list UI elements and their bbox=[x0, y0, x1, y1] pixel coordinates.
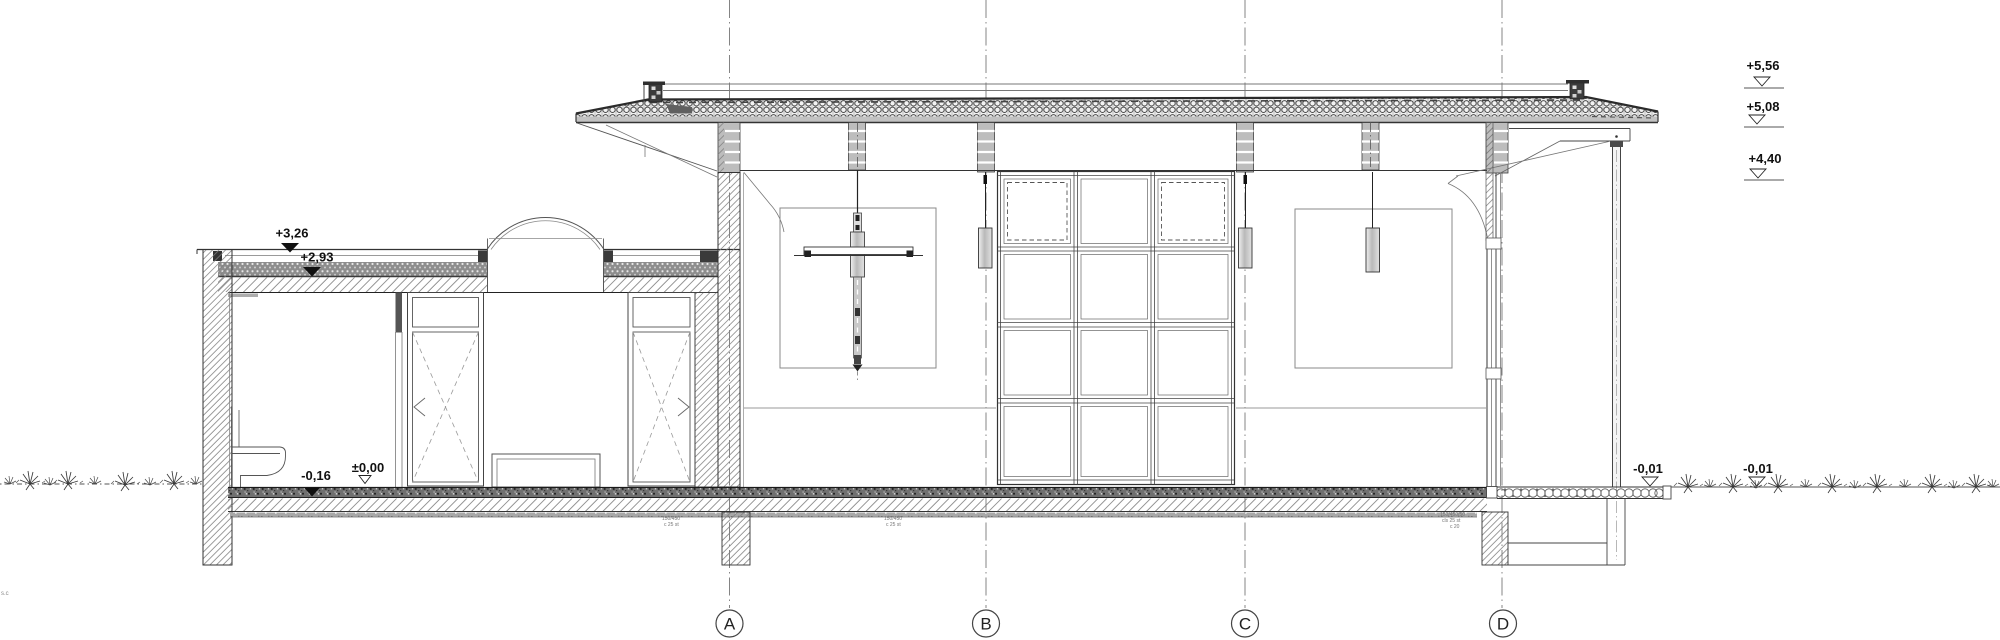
svg-text:+5,08: +5,08 bbox=[1747, 99, 1780, 114]
svg-text:-0,01: -0,01 bbox=[1743, 461, 1773, 476]
svg-text:±0,00: ±0,00 bbox=[352, 460, 384, 475]
svg-text:A: A bbox=[724, 615, 736, 634]
svg-text:+5,56: +5,56 bbox=[1747, 58, 1780, 73]
svg-text:-0,16: -0,16 bbox=[301, 468, 331, 483]
svg-text:c 20: c 20 bbox=[1450, 524, 1460, 530]
svg-text:+2,93: +2,93 bbox=[301, 250, 334, 265]
svg-text:+4,40: +4,40 bbox=[1749, 151, 1782, 166]
svg-text:+3,26: +3,26 bbox=[276, 226, 309, 241]
svg-text:C: C bbox=[1239, 615, 1251, 634]
svg-text:c 25 st: c 25 st bbox=[664, 522, 679, 528]
svg-text:s.c: s.c bbox=[1, 591, 9, 597]
svg-text:B: B bbox=[980, 615, 991, 634]
svg-text:-0,01: -0,01 bbox=[1633, 461, 1663, 476]
svg-text:D: D bbox=[1497, 615, 1509, 634]
svg-text:c 25 st: c 25 st bbox=[886, 522, 901, 528]
